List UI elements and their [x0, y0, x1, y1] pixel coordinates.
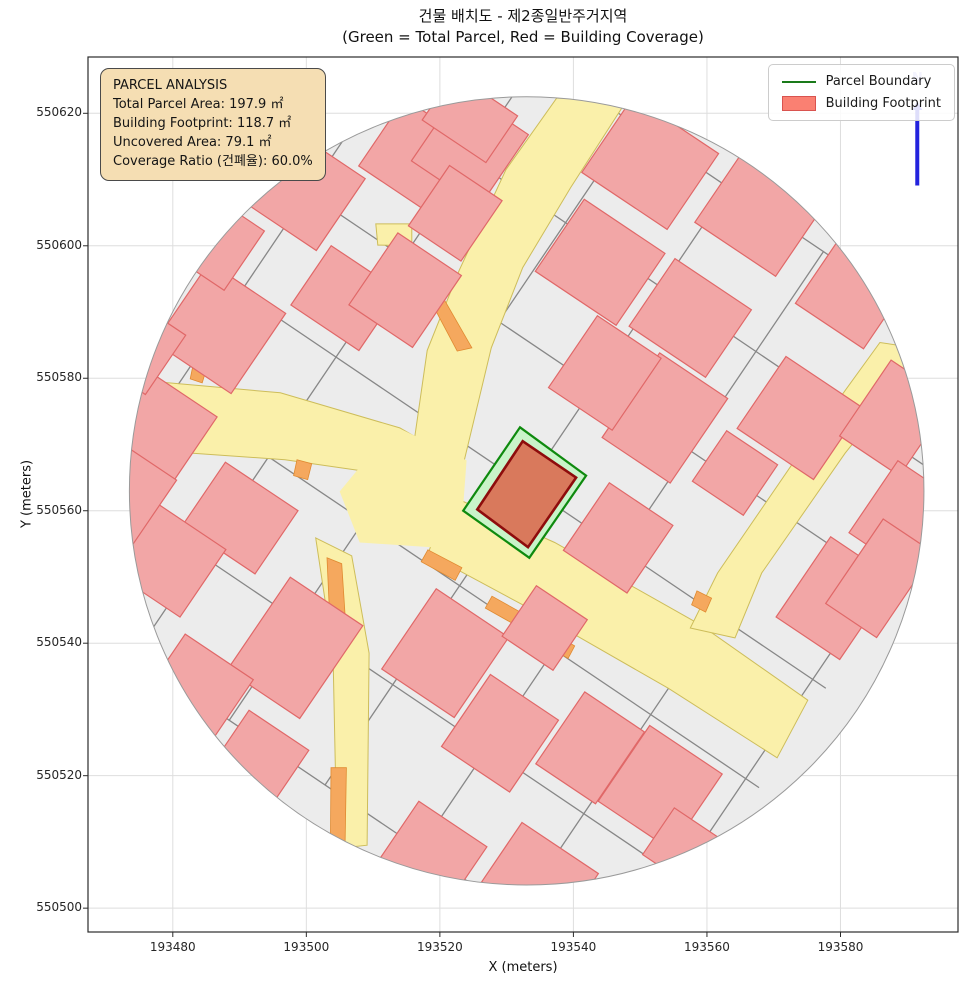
y-tick-label: 550500	[28, 900, 82, 914]
setback-strip	[330, 768, 346, 846]
building-footprint	[182, 828, 289, 927]
y-tick-label: 550620	[28, 105, 82, 119]
x-axis-label: X (meters)	[88, 960, 958, 975]
legend-item-building-footprint: Building Footprint	[782, 96, 941, 111]
parcel-analysis-line: Coverage Ratio (건폐율): 60.0%	[113, 153, 313, 172]
y-tick-label: 550560	[28, 503, 82, 517]
parcel-analysis-line: Building Footprint: 118.7 ㎡	[113, 115, 313, 134]
x-tick-label: 193480	[145, 940, 201, 954]
x-tick-label: 193560	[679, 940, 735, 954]
parcel-boundary-line-swatch	[782, 81, 816, 83]
parcel-analysis-box: PARCEL ANALYSISTotal Parcel Area: 197.9 …	[100, 68, 326, 181]
legend-label: Building Footprint	[826, 96, 941, 111]
chart-title-block: 건물 배치도 - 제2종일반주거지역 (Green = Total Parcel…	[88, 6, 958, 49]
y-axis-label: Y (meters)	[20, 460, 35, 528]
x-tick-label: 193580	[812, 940, 868, 954]
x-tick-label: 193500	[278, 940, 334, 954]
map-layer	[78, 47, 970, 952]
y-tick-label: 550600	[28, 238, 82, 252]
y-tick-label: 550580	[28, 370, 82, 384]
map-plot-svg: N	[78, 47, 970, 952]
figure-canvas: 건물 배치도 - 제2종일반주거지역 (Green = Total Parcel…	[0, 0, 970, 990]
building-footprint-patch-swatch	[782, 96, 816, 111]
parcel-analysis-line: PARCEL ANALYSIS	[113, 77, 313, 96]
y-tick-label: 550520	[28, 768, 82, 782]
legend-item-parcel-boundary: Parcel Boundary	[782, 74, 941, 89]
chart-title: 건물 배치도 - 제2종일반주거지역	[88, 6, 958, 27]
chart-subtitle: (Green = Total Parcel, Red = Building Co…	[88, 27, 958, 48]
legend-label: Parcel Boundary	[826, 74, 932, 89]
parcel-analysis-line: Total Parcel Area: 197.9 ㎡	[113, 96, 313, 115]
parcel-analysis-line: Uncovered Area: 79.1 ㎡	[113, 134, 313, 153]
x-tick-label: 193540	[545, 940, 601, 954]
y-tick-label: 550540	[28, 635, 82, 649]
x-tick-label: 193520	[412, 940, 468, 954]
legend: Parcel Boundary Building Footprint	[768, 64, 955, 121]
